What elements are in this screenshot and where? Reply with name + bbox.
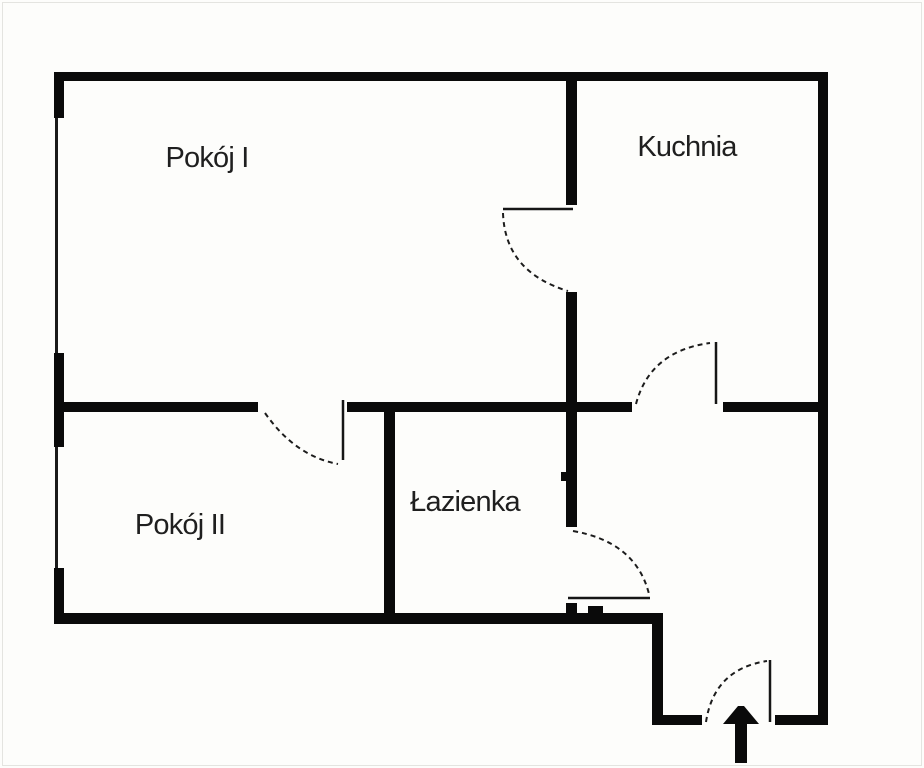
- wall-vestibule-bottom-left: [652, 715, 702, 725]
- window-pokoj-i: [55, 118, 58, 353]
- wall-divider-left: [54, 402, 258, 412]
- threshold-mark: [588, 606, 603, 614]
- entrance-arrow-stem: [735, 723, 747, 763]
- wall-left-upper: [54, 72, 64, 118]
- wall-top: [54, 72, 828, 81]
- room-label-lazienka: Łazienka: [410, 486, 521, 518]
- wall-right: [818, 72, 828, 725]
- wall-lazienka-left: [384, 402, 395, 624]
- wall-vestibule-bottom-right: [775, 715, 828, 725]
- floor-plan-page: Pokój I Kuchnia Pokój II Łazienka: [0, 0, 924, 768]
- wall-divider-right: [723, 402, 818, 412]
- floor-plan: Pokój I Kuchnia Pokój II Łazienka: [0, 0, 924, 768]
- wall-central-stub: [566, 603, 577, 615]
- window-pokoj-ii: [55, 447, 58, 568]
- room-label-kuchnia: Kuchnia: [637, 131, 738, 163]
- door-pokoj-i-arc: [503, 213, 568, 291]
- entrance-arrow-head: [723, 706, 759, 724]
- room-label-pokoj-i: Pokój I: [165, 142, 248, 174]
- door-lazienka-arc: [573, 531, 649, 594]
- door-pokoj-ii-arc: [265, 413, 338, 464]
- wall-central-upper: [566, 78, 577, 205]
- entrance-arrow-icon: [723, 706, 759, 763]
- room-label-pokoj-ii: Pokój II: [135, 509, 225, 541]
- wall-central-tick: [561, 472, 567, 481]
- wall-vestibule-left: [652, 613, 663, 725]
- wall-left-middle: [54, 353, 64, 447]
- door-kuchnia-arc: [636, 343, 710, 404]
